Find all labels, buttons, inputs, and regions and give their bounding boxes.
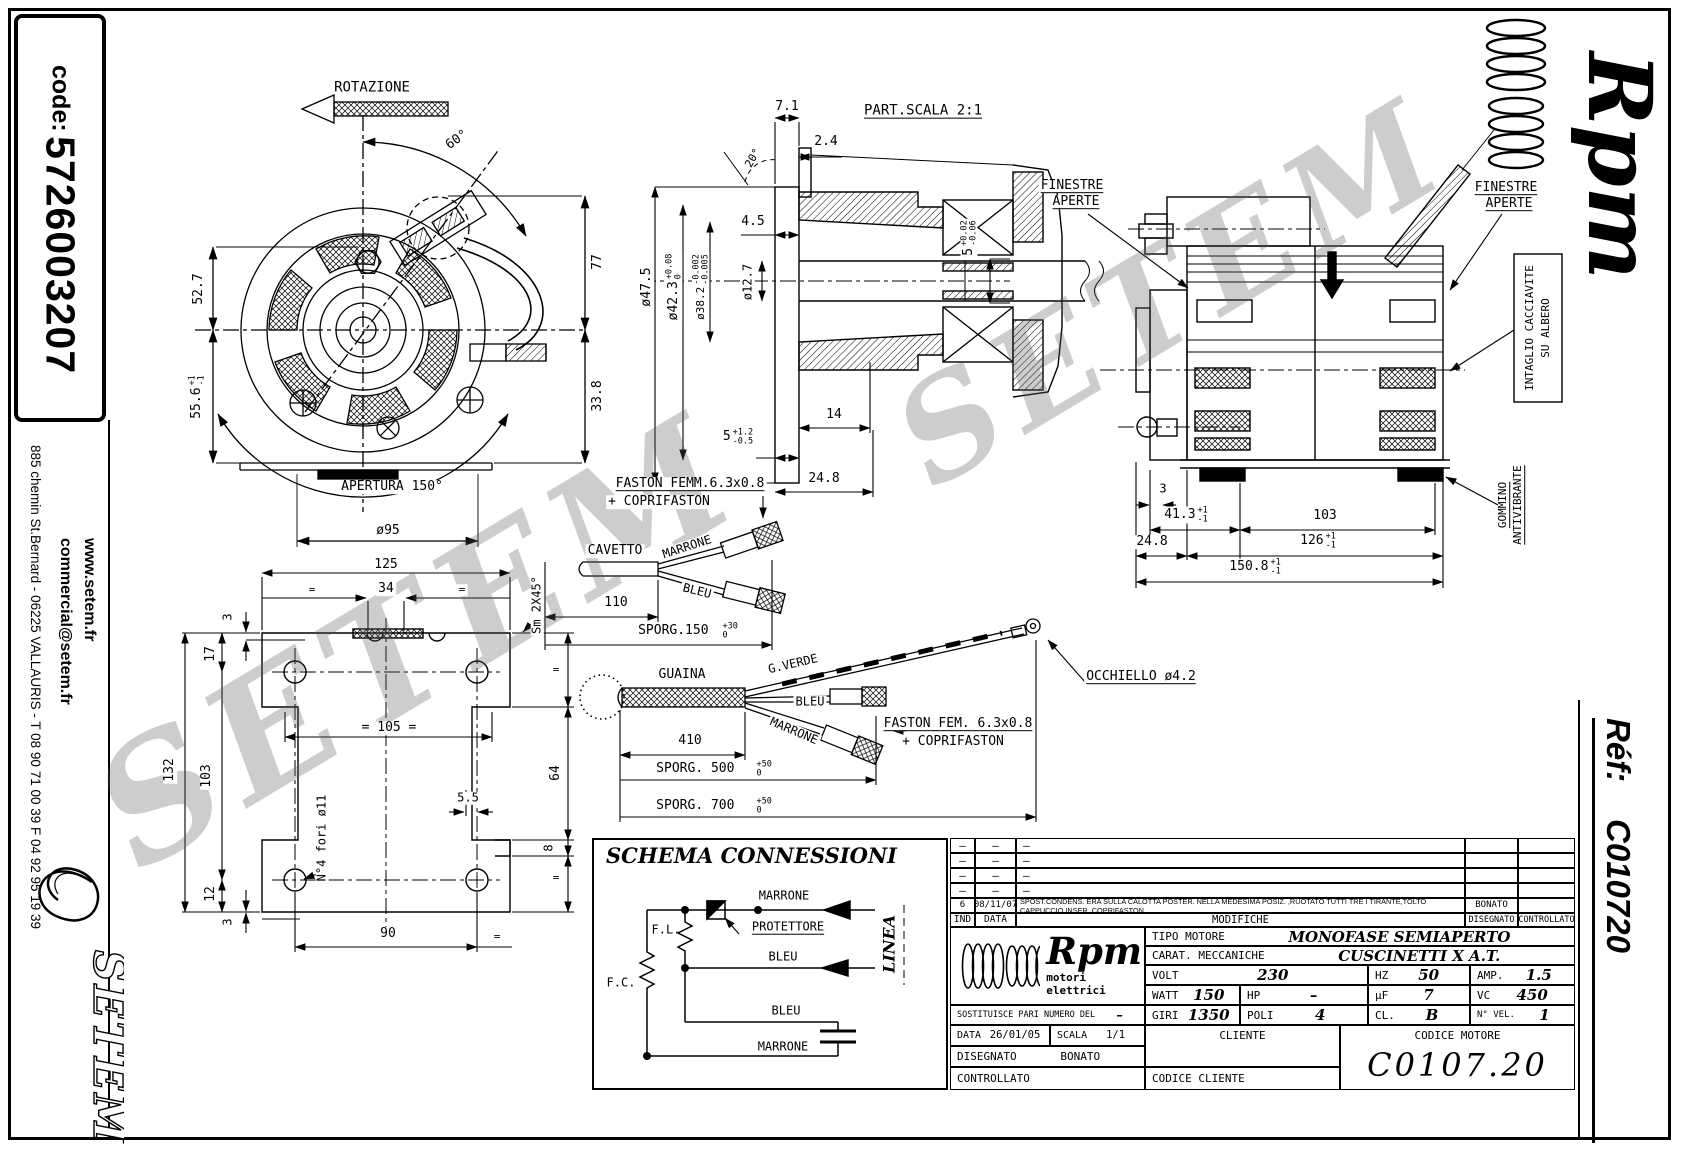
tipo-motore-row: TIPO MOTORE MONOFASE SEMIAPERTO: [1145, 927, 1575, 946]
dim-3-side: 3: [1157, 483, 1168, 496]
cliente-cell: CLIENTE: [1145, 1025, 1340, 1067]
dim-41-3: 41.3+1-1: [1162, 507, 1210, 524]
data-cell: DATA 26/01/05: [950, 1025, 1050, 1046]
rpm-tagline: motori elettrici: [1046, 971, 1144, 997]
section-title: PART.SCALA 2:1: [862, 104, 984, 119]
fc-label: F.C.: [605, 977, 638, 990]
email-text: commercial@setem.fr: [56, 538, 74, 878]
rev-row-ind: –: [950, 868, 975, 883]
dim-90: 90: [378, 927, 398, 941]
linea-label: LINEA: [882, 913, 899, 975]
dim-14: 14: [824, 408, 844, 422]
cl-cell: CL.B: [1368, 1005, 1470, 1025]
schema-marrone-top: MARRONE: [757, 890, 812, 903]
dim-5-right: 5+0.02-0.06: [961, 218, 978, 257]
volt-cell: VOLT230: [1145, 965, 1368, 985]
fl-label: F.L.: [650, 924, 683, 937]
sostituisce-cell: SOSTITUISCE PARI NUMERO DEL–: [950, 1005, 1145, 1025]
rev-row-ind: –: [950, 853, 975, 868]
setem-logo-text: SETEM: [83, 950, 124, 1145]
code-label: code:: [47, 65, 75, 132]
rev-header-ind: IND: [950, 913, 975, 927]
sporg-150-label: SPORG.150+300: [636, 623, 740, 640]
coprifaston-label-2: + COPRIFASTON: [900, 735, 1006, 749]
eq-mark-4: =: [551, 664, 562, 676]
dim-dia47-5: ø47.5: [640, 265, 654, 308]
finestre-left-2: APERTE: [1051, 195, 1102, 209]
dim-125: 125: [372, 558, 399, 572]
base-view-lineart: [182, 573, 574, 952]
dim-105: = 105 =: [360, 721, 419, 735]
cavetto-label: CAVETTO: [586, 544, 645, 558]
dim-17: 17: [204, 644, 218, 664]
rev-row-mod: –: [1016, 868, 1465, 883]
dim-2-4: 2.4: [812, 135, 839, 149]
dim-dia42-3: ø42.3+0.080: [666, 252, 683, 323]
rev-row-ind: –: [950, 883, 975, 898]
giri-cell: GIRI1350: [1145, 1005, 1240, 1025]
reference-number: Réf: C010720: [1592, 718, 1637, 1143]
eq-mark-2: =: [457, 584, 468, 596]
rev-header-modifiche: MODIFICHE: [1016, 913, 1465, 927]
titleblock-logo-cell: Rpm motori elettrici: [950, 927, 1145, 1005]
nvel-cell: N° VEL.1: [1470, 1005, 1575, 1025]
smusso-label: Sm 2X45°: [531, 574, 544, 636]
codice-motore-cell: CODICE MOTORE C0107.20: [1340, 1025, 1575, 1090]
rev-row-data: –: [975, 853, 1016, 868]
dim-126: 126+1-1: [1298, 533, 1338, 550]
sporg-700-label: SPORG. 700+500: [654, 798, 774, 815]
rev-row-mod: –: [1016, 883, 1465, 898]
rev-row-data: –: [975, 883, 1016, 898]
hp-cell: HP–: [1240, 985, 1368, 1005]
setem-swirl-icon: [40, 868, 98, 920]
vc-cell: VC450: [1470, 985, 1575, 1005]
apertura-label: APERTURA 150°: [339, 480, 445, 494]
dim-24-8-side: 24.8: [1134, 535, 1169, 549]
rev-row-con: [1518, 853, 1575, 868]
code-value: 5726003207: [38, 137, 84, 375]
codice-cliente-cell: CODICE CLIENTE: [1145, 1067, 1340, 1090]
scala-cell: SCALA 1/1: [1050, 1025, 1145, 1046]
hz-cell: HZ50: [1368, 965, 1470, 985]
carat-row: CARAT. MECCANICHE CUSCINETTI X A.T.: [1145, 946, 1575, 965]
dim-52-7: 52.7: [192, 271, 206, 306]
ref-value: C010720: [1600, 819, 1637, 953]
poli-cell: POLI4: [1240, 1005, 1368, 1025]
occhiello-label: OCCHIELLO ø4.2: [1084, 670, 1198, 684]
rev-header-controllato: CONTROLLATO: [1518, 913, 1575, 927]
rpm-logo-text: Rpm: [1046, 935, 1144, 968]
dim-dia95: ø95: [374, 524, 401, 538]
faston-femm-label: FASTON FEMM.6.3x0.8: [614, 477, 767, 491]
gommino-label-1: GOMMINO: [1497, 480, 1509, 530]
setem-logo: SETEM: [14, 830, 124, 1150]
rev-header-data: DATA: [975, 913, 1016, 927]
amp-cell: AMP.1.5: [1470, 965, 1575, 985]
faston-fem-label: FASTON FEM. 6.3x0.8: [882, 717, 1035, 731]
dim-3-top: 3: [222, 611, 235, 622]
rev-row-mod: SPOST.CONDENS. ERA SULLA CALOTTA POSTER.…: [1016, 898, 1465, 913]
rev-row-data: –: [975, 868, 1016, 883]
rev-row-con: [1518, 838, 1575, 853]
protettore-label: PROTETTORE: [750, 921, 826, 934]
fori-label: N°4 fori ø11: [316, 793, 329, 884]
rev-row-data: 08/11/07: [975, 898, 1016, 913]
rev-row-dis: [1465, 838, 1518, 853]
finestre-right-2: APERTE: [1484, 197, 1535, 211]
rev-row-data: –: [975, 838, 1016, 853]
drawing-sheet: SETEM SETEM code: 5726003207 www.setem.f…: [0, 0, 1683, 1153]
rotazione-label: ROTAZIONE: [332, 81, 412, 96]
bleu-wire-label-2: BLEU: [794, 696, 827, 709]
eq-mark-5: =: [551, 872, 562, 884]
dim-24-8-section: 24.8: [806, 472, 841, 486]
dim-33-8: 33.8: [591, 378, 605, 413]
dim-64: 64: [549, 763, 563, 783]
sporg-500-label: SPORG. 500+500: [654, 761, 774, 778]
dim-dia12-7: ø12.7: [742, 262, 755, 302]
rev-row-con: [1518, 868, 1575, 883]
dim-132: 132: [163, 756, 177, 783]
spring-coil-icon: [1478, 14, 1558, 184]
rev-row-con: [1518, 898, 1575, 913]
dim-8: 8: [543, 842, 556, 853]
ref-label: Réf:: [1600, 718, 1637, 782]
dim-7-1: 7.1: [773, 100, 800, 114]
eq-mark-1: =: [307, 584, 318, 596]
dim-103-side: 103: [1311, 509, 1338, 523]
dim-12: 12: [204, 884, 218, 904]
rev-row-dis: BONATO: [1465, 898, 1518, 913]
dim-34: 34: [376, 582, 396, 596]
rpm-coil-icon: [959, 940, 1040, 992]
schema-bleu-low: BLEU: [770, 1005, 803, 1018]
dim-150-8: 150.8+1-1: [1227, 559, 1282, 576]
codice-motore-value: C0107.20: [1367, 1046, 1548, 1084]
rev-row-con: [1518, 883, 1575, 898]
dim-5-left: 5+1.2-0.5: [721, 429, 755, 446]
dim-4-5: 4.5: [739, 215, 766, 229]
gommino-label-2: ANTIVIBRANTE: [1512, 463, 1524, 546]
uf-cell: µF7: [1368, 985, 1470, 1005]
eq-mark-3: =: [492, 931, 503, 943]
dim-77: 77: [591, 252, 605, 272]
intaglio-label-2: SU ALBERO: [1540, 296, 1552, 360]
code-box: code: 5726003207: [14, 14, 106, 422]
schema-bleu-mid: BLEU: [767, 951, 800, 964]
watt-cell: WATT150: [1145, 985, 1240, 1005]
rev-row-dis: [1465, 853, 1518, 868]
dim-5-5: 5.5: [455, 792, 481, 805]
dim-410: 410: [676, 734, 703, 748]
guaina-label: GUAINA: [657, 668, 708, 682]
schema-title: SCHEMA CONNESSIONI: [604, 845, 899, 867]
rev-row-mod: –: [1016, 838, 1465, 853]
dim-103-base: 103: [200, 762, 214, 789]
section-view-lineart: [640, 118, 1104, 497]
rev-row-dis: [1465, 883, 1518, 898]
dim-dia38-2: ø38.2-0.002-0.005: [693, 252, 710, 322]
coprifaston-label-1: + COPRIFASTON: [606, 495, 712, 509]
rev-header-disegnato: DISEGNATO: [1465, 913, 1518, 927]
dim-55-6: 55.6+1-1: [189, 373, 206, 421]
dim-3-bot: 3: [222, 916, 235, 927]
finestre-left-1: FINESTRE: [1039, 179, 1106, 193]
rev-row-ind: 6: [950, 898, 975, 913]
rpm-brand-top: Rpm: [1568, 52, 1672, 352]
website-text: www.setem.fr: [80, 538, 98, 778]
schema-marrone-low: MARRONE: [756, 1041, 811, 1054]
dim-110: 110: [602, 596, 629, 610]
rev-row-dis: [1465, 868, 1518, 883]
disegnato-cell: DISEGNATO BONATO: [950, 1046, 1145, 1067]
rev-row-mod: –: [1016, 853, 1465, 868]
controllato-cell: CONTROLLATO: [950, 1067, 1145, 1090]
rev-row-ind: –: [950, 838, 975, 853]
intaglio-label-1: INTAGLIO CACCIAVITE: [1524, 263, 1536, 393]
